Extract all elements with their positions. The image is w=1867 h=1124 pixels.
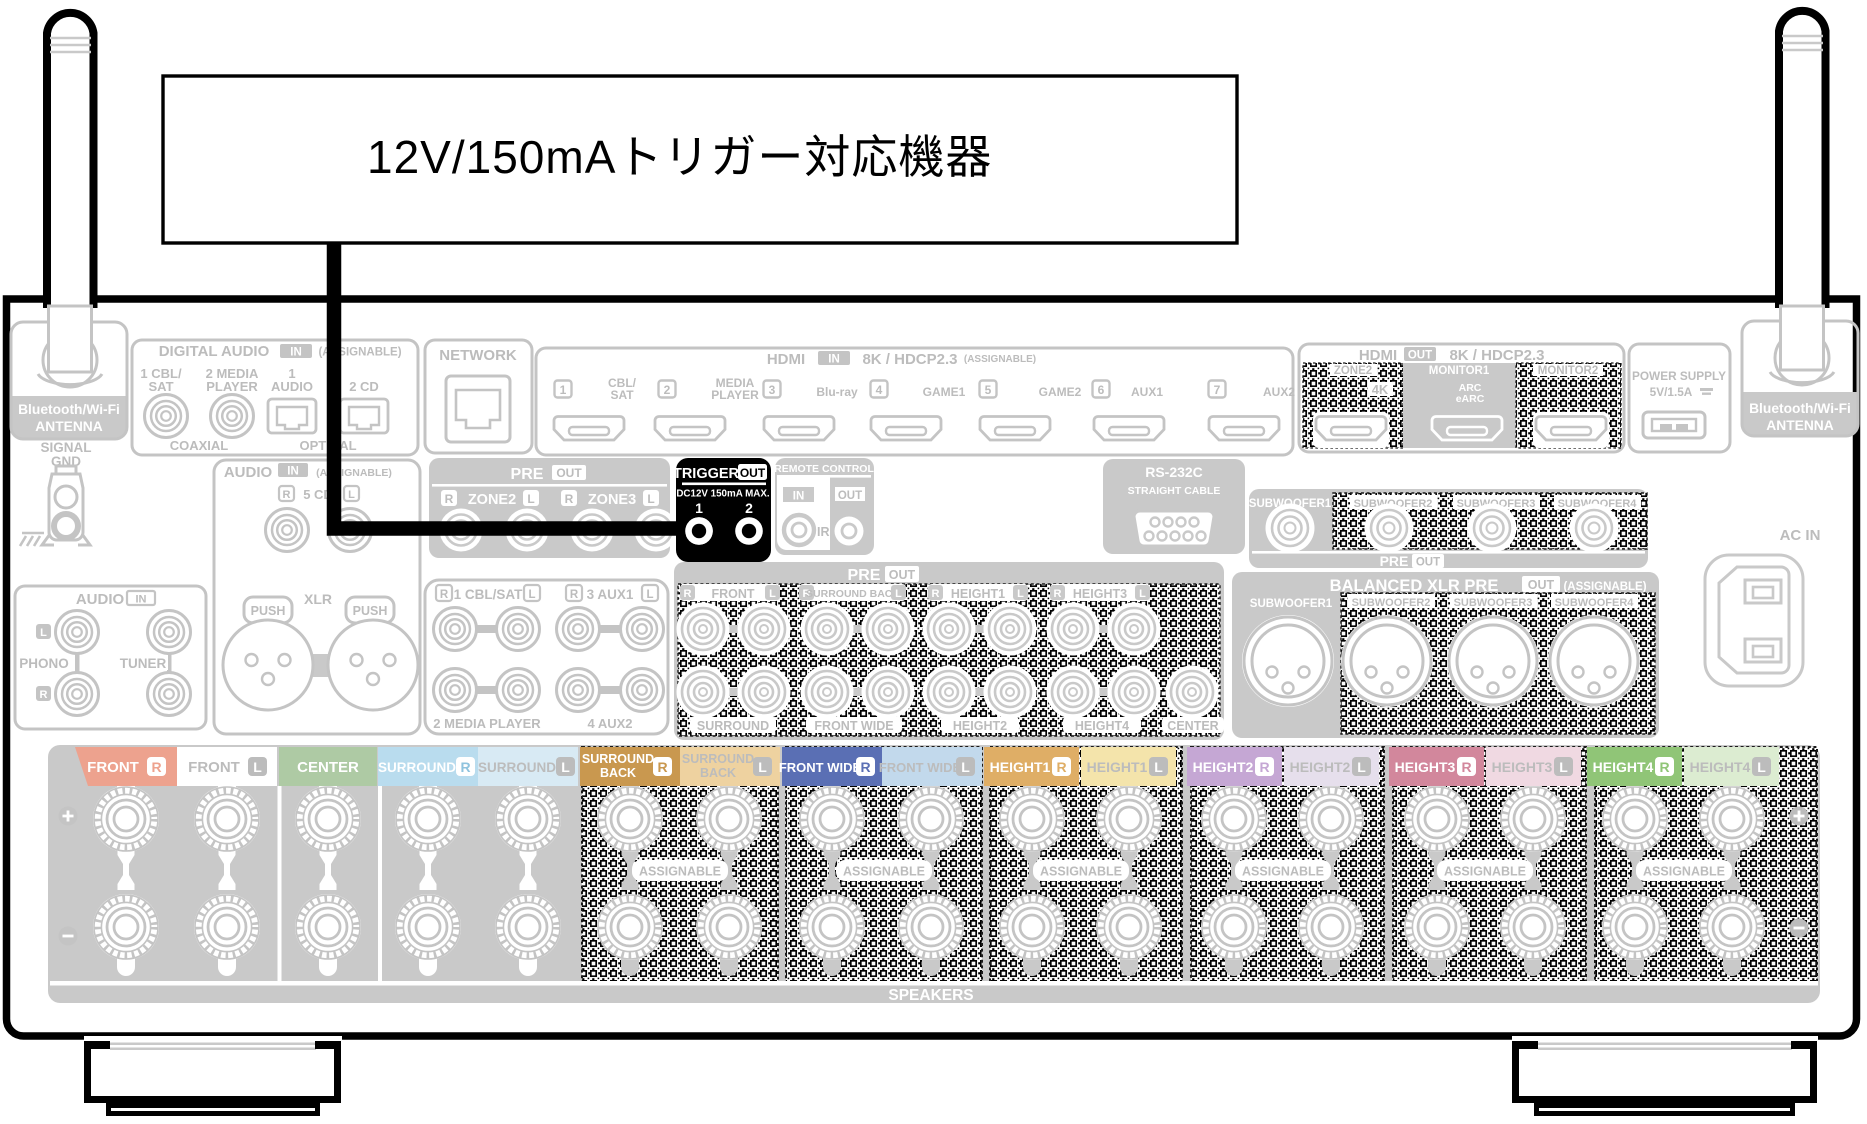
svg-text:MONITOR1: MONITOR1 (1429, 365, 1490, 377)
svg-text:IN: IN (290, 347, 302, 359)
svg-text:R: R (445, 492, 454, 506)
svg-text:1 CBL/SAT: 1 CBL/SAT (454, 587, 524, 602)
svg-text:POWER SUPPLY: POWER SUPPLY (1632, 369, 1726, 383)
svg-text:DC12V 150mA MAX.: DC12V 150mA MAX. (676, 489, 770, 500)
svg-text:GAME2: GAME2 (1039, 385, 1082, 399)
svg-text:R: R (40, 689, 48, 701)
svg-text:IN: IN (793, 491, 805, 503)
svg-text:HEIGHT4: HEIGHT4 (1690, 759, 1751, 775)
svg-text:RS-232C: RS-232C (1145, 464, 1203, 480)
svg-text:R: R (1054, 588, 1062, 600)
svg-text:PHONO: PHONO (19, 656, 69, 671)
svg-text:ASSIGNABLE: ASSIGNABLE (843, 865, 925, 879)
svg-text:OUT: OUT (838, 490, 862, 502)
svg-text:SUBWOOFER2: SUBWOOFER2 (1352, 597, 1431, 609)
svg-text:L: L (527, 492, 534, 506)
svg-text:HEIGHT4: HEIGHT4 (1075, 719, 1129, 733)
svg-text:L: L (1139, 588, 1146, 600)
svg-text:R: R (565, 492, 574, 506)
svg-text:L: L (561, 759, 570, 775)
svg-text:8K / HDCP2.3: 8K / HDCP2.3 (862, 351, 957, 368)
svg-text:AUDIO: AUDIO (271, 379, 313, 394)
svg-text:PLAYER: PLAYER (711, 388, 759, 402)
svg-text:OUT: OUT (1528, 578, 1555, 592)
svg-text:SUBWOOFER3: SUBWOOFER3 (1454, 597, 1533, 609)
svg-text:PUSH: PUSH (251, 604, 286, 618)
svg-text:STRAIGHT CABLE: STRAIGHT CABLE (1128, 485, 1221, 497)
svg-text:DIGITAL AUDIO: DIGITAL AUDIO (159, 343, 270, 360)
svg-text:PUSH: PUSH (353, 604, 388, 618)
svg-text:OUT: OUT (740, 466, 766, 480)
svg-text:ZONE2: ZONE2 (468, 492, 516, 508)
svg-text:HEIGHT2: HEIGHT2 (1290, 759, 1351, 775)
svg-text:BACK: BACK (700, 766, 736, 780)
svg-text:(ASSIGNABLE): (ASSIGNABLE) (964, 354, 1036, 365)
svg-text:L: L (348, 489, 355, 501)
svg-text:HEIGHT1: HEIGHT1 (951, 587, 1005, 601)
svg-text:1: 1 (695, 500, 703, 516)
svg-text:FRONT: FRONT (87, 759, 139, 776)
svg-text:4: 4 (876, 383, 883, 397)
svg-text:L: L (253, 759, 262, 775)
svg-text:R: R (860, 759, 870, 775)
svg-text:R: R (283, 489, 291, 501)
svg-text:L: L (646, 589, 653, 601)
svg-text:R: R (1461, 759, 1471, 775)
svg-text:HDMI: HDMI (1359, 347, 1397, 364)
svg-text:ASSIGNABLE: ASSIGNABLE (1040, 865, 1122, 879)
svg-text:SURROUND: SURROUND (697, 719, 769, 733)
svg-text:TUNER: TUNER (120, 656, 167, 671)
svg-text:SURROUND: SURROUND (682, 752, 754, 766)
svg-text:HEIGHT1: HEIGHT1 (1087, 759, 1148, 775)
svg-text:2 CD: 2 CD (349, 379, 379, 394)
svg-text:3: 3 (769, 383, 776, 397)
svg-text:L: L (758, 759, 767, 775)
svg-text:R: R (932, 588, 940, 600)
svg-text:AC IN: AC IN (1780, 527, 1821, 544)
svg-text:ASSIGNABLE: ASSIGNABLE (1643, 865, 1725, 879)
svg-text:6: 6 (1098, 383, 1105, 397)
svg-text:R: R (1659, 759, 1669, 775)
svg-text:L: L (647, 492, 654, 506)
svg-text:PRE: PRE (1380, 553, 1409, 569)
svg-text:FRONT: FRONT (188, 759, 240, 776)
svg-text:5V/1.5A: 5V/1.5A (1650, 385, 1693, 399)
svg-text:L: L (1154, 759, 1163, 775)
svg-text:FRONT WIDE: FRONT WIDE (814, 719, 893, 733)
svg-text:ASSIGNABLE: ASSIGNABLE (639, 865, 721, 879)
svg-text:HEIGHT2: HEIGHT2 (953, 719, 1007, 733)
svg-text:BACK: BACK (600, 766, 636, 780)
svg-text:SUBWOOFER4: SUBWOOFER4 (1555, 597, 1635, 609)
svg-text:ANTENNA: ANTENNA (1766, 418, 1833, 433)
svg-text:CENTER: CENTER (297, 759, 359, 776)
svg-text:SAT: SAT (148, 379, 173, 394)
svg-text:XLR: XLR (304, 591, 332, 607)
svg-text:OUT: OUT (556, 466, 582, 480)
svg-text:AUX1: AUX1 (1131, 385, 1163, 399)
svg-text:SIGNAL: SIGNAL (40, 440, 91, 455)
svg-text:R: R (657, 759, 667, 775)
svg-text:Bluetooth/Wi-Fi: Bluetooth/Wi-Fi (1749, 401, 1851, 416)
svg-text:SAT: SAT (610, 388, 634, 402)
svg-text:AUX2: AUX2 (1263, 385, 1295, 399)
svg-text:IR: IR (817, 525, 830, 539)
svg-text:SUBWOOFER1: SUBWOOFER1 (1250, 598, 1333, 610)
svg-text:FRONT WIDE: FRONT WIDE (879, 760, 962, 775)
svg-text:PRE: PRE (848, 567, 881, 584)
svg-text:(ASSIGNABLE): (ASSIGNABLE) (1563, 581, 1646, 593)
svg-text:SPEAKERS: SPEAKERS (888, 987, 973, 1004)
svg-text:IN: IN (287, 466, 299, 478)
svg-text:L: L (528, 589, 535, 601)
svg-text:OUT: OUT (889, 568, 916, 582)
svg-text:Bluetooth/Wi-Fi: Bluetooth/Wi-Fi (18, 402, 120, 417)
svg-text:COAXIAL: COAXIAL (170, 438, 229, 453)
svg-text:L: L (961, 759, 970, 775)
svg-text:8K / HDCP2.3: 8K / HDCP2.3 (1449, 347, 1544, 364)
svg-text:7: 7 (1214, 383, 1221, 397)
svg-text:ZONE3: ZONE3 (588, 492, 636, 508)
svg-text:L: L (1559, 759, 1568, 775)
svg-text:L: L (1017, 588, 1024, 600)
svg-text:HEIGHT1: HEIGHT1 (990, 759, 1051, 775)
svg-text:R: R (460, 759, 470, 775)
svg-text:OUT: OUT (1416, 557, 1440, 569)
svg-text:SURROUND BACK: SURROUND BACK (806, 588, 900, 600)
svg-text:AUDIO: AUDIO (76, 591, 125, 608)
svg-text:R: R (1056, 759, 1066, 775)
svg-text:TRIGGER: TRIGGER (673, 466, 740, 482)
svg-text:NETWORK: NETWORK (439, 347, 517, 364)
svg-text:4 AUX2: 4 AUX2 (587, 716, 632, 731)
svg-text:L: L (1357, 759, 1366, 775)
svg-text:2: 2 (745, 500, 753, 516)
svg-text:2 MEDIA PLAYER: 2 MEDIA PLAYER (433, 716, 541, 731)
svg-text:2: 2 (664, 383, 671, 397)
svg-text:HEIGHT3: HEIGHT3 (1073, 587, 1127, 601)
svg-text:CENTER: CENTER (1167, 719, 1218, 733)
svg-text:Blu-ray: Blu-ray (816, 385, 858, 399)
svg-text:FRONT: FRONT (711, 587, 754, 601)
svg-text:ZONE2: ZONE2 (1334, 365, 1372, 377)
svg-text:HEIGHT4: HEIGHT4 (1593, 759, 1654, 775)
svg-text:GAME1: GAME1 (923, 385, 966, 399)
svg-text:L: L (1757, 759, 1766, 775)
svg-text:AUDIO: AUDIO (224, 464, 273, 481)
svg-text:3 AUX1: 3 AUX1 (587, 587, 634, 602)
svg-text:SURROUND: SURROUND (378, 760, 456, 775)
svg-text:1: 1 (560, 383, 567, 397)
svg-text:R: R (151, 759, 161, 775)
svg-text:L: L (769, 588, 776, 600)
svg-text:FRONT WIDE: FRONT WIDE (779, 760, 862, 775)
svg-text:ASSIGNABLE: ASSIGNABLE (1242, 865, 1324, 879)
svg-text:SURROUND: SURROUND (582, 752, 654, 766)
svg-text:R: R (1259, 759, 1269, 775)
svg-text:12V/150mAトリガー対応機器: 12V/150mAトリガー対応機器 (367, 131, 992, 183)
svg-text:PRE: PRE (511, 466, 544, 483)
svg-text:PLAYER: PLAYER (206, 379, 258, 394)
svg-text:L: L (895, 588, 902, 600)
svg-text:OUT: OUT (1408, 350, 1432, 362)
svg-text:R: R (684, 588, 692, 600)
svg-text:L: L (40, 627, 47, 639)
svg-text:4K: 4K (1372, 382, 1389, 397)
svg-text:SURROUND: SURROUND (478, 760, 556, 775)
svg-text:HEIGHT3: HEIGHT3 (1395, 759, 1456, 775)
svg-text:5: 5 (985, 383, 992, 397)
svg-text:R: R (440, 589, 449, 601)
svg-text:ASSIGNABLE: ASSIGNABLE (1444, 865, 1526, 879)
svg-text:REMOTE CONTROL: REMOTE CONTROL (774, 463, 874, 475)
svg-text:HDMI: HDMI (767, 351, 805, 368)
svg-text:HEIGHT2: HEIGHT2 (1193, 759, 1254, 775)
svg-text:IN: IN (828, 354, 840, 366)
svg-text:HEIGHT3: HEIGHT3 (1492, 759, 1553, 775)
svg-text:ANTENNA: ANTENNA (35, 419, 102, 434)
svg-text:IN: IN (136, 594, 147, 606)
svg-text:eARC: eARC (1456, 393, 1485, 405)
svg-text:MONITOR2: MONITOR2 (1538, 365, 1599, 377)
svg-text:R: R (570, 589, 579, 601)
